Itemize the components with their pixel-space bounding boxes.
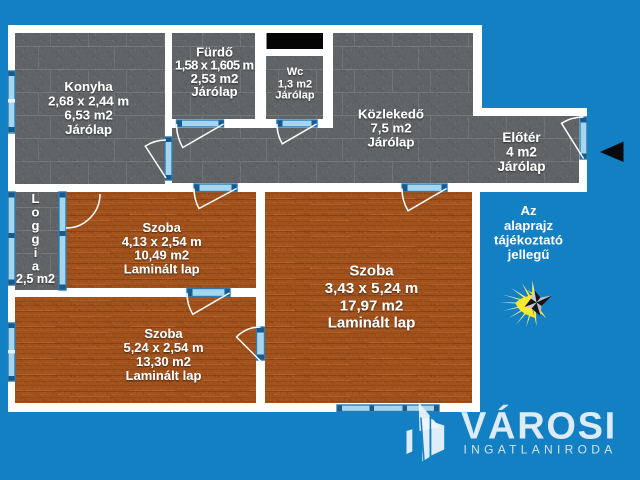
svg-text:7,5 m2: 7,5 m2: [370, 121, 411, 136]
svg-text:Szoba: Szoba: [143, 220, 182, 235]
svg-text:Wc: Wc: [287, 66, 304, 78]
svg-text:tájékoztató: tájékoztató: [494, 233, 563, 248]
svg-text:VÁROSI: VÁROSI: [461, 404, 617, 448]
svg-text:17,97 m2: 17,97 m2: [340, 297, 403, 314]
svg-text:Konyha: Konyha: [64, 79, 113, 94]
svg-text:alaprajz: alaprajz: [504, 218, 554, 233]
svg-text:1,3 m2: 1,3 m2: [278, 78, 312, 90]
svg-text:Laminált lap: Laminált lap: [126, 368, 202, 383]
svg-text:Szoba: Szoba: [349, 262, 394, 279]
svg-text:5,24 x 2,54 m: 5,24 x 2,54 m: [124, 340, 204, 355]
svg-text:6,53 m2: 6,53 m2: [64, 108, 112, 123]
svg-text:2,5 m2: 2,5 m2: [16, 272, 55, 286]
svg-text:Közlekedő: Közlekedő: [358, 107, 424, 122]
svg-text:Járólap: Járólap: [191, 84, 237, 99]
svg-text:Járólap: Járólap: [65, 122, 112, 137]
svg-text:jellegű: jellegű: [507, 247, 550, 262]
svg-text:Az: Az: [520, 203, 537, 218]
svg-text:Járólap: Járólap: [275, 90, 314, 102]
svg-text:Előtér: Előtér: [502, 130, 541, 145]
svg-text:Járólap: Járólap: [497, 159, 545, 174]
svg-text:2,68 x 2,44 m: 2,68 x 2,44 m: [48, 93, 129, 108]
svg-text:10,49 m2: 10,49 m2: [134, 248, 189, 263]
svg-text:13,30 m2: 13,30 m2: [136, 354, 191, 369]
svg-text:Szoba: Szoba: [144, 326, 183, 341]
svg-text:3,43 x 5,24 m: 3,43 x 5,24 m: [325, 280, 419, 297]
svg-text:Laminált lap: Laminált lap: [328, 315, 416, 332]
svg-text:INGATLANIRODA: INGATLANIRODA: [464, 443, 617, 457]
svg-text:4 m2: 4 m2: [506, 145, 537, 160]
svg-text:Laminált lap: Laminált lap: [124, 261, 200, 276]
svg-text:4,13 x 2,54 m: 4,13 x 2,54 m: [122, 234, 202, 249]
svg-text:Járólap: Járólap: [368, 134, 415, 149]
